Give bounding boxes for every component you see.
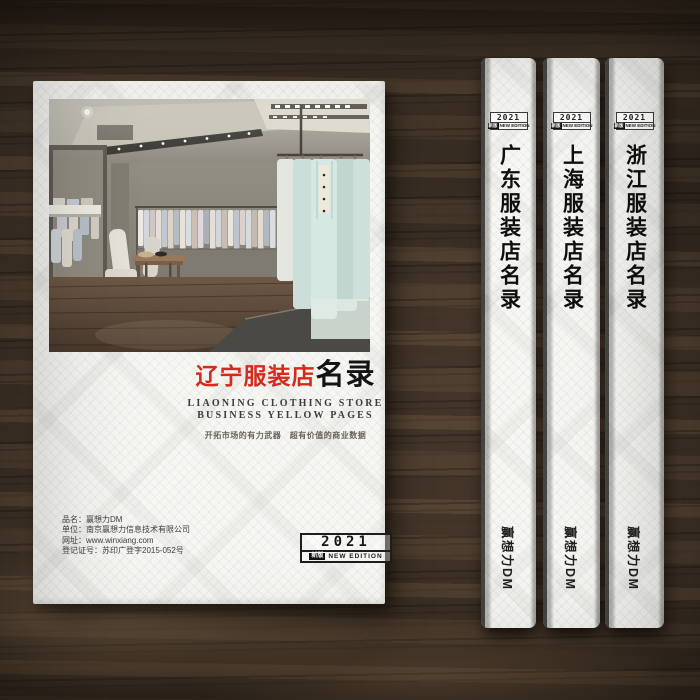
spine-brand: 赢想力DM <box>499 526 518 590</box>
info-line-company: 单位：南京赢想力信息技术有限公司 <box>62 525 190 535</box>
spine-brand: 赢想力DM <box>562 526 581 590</box>
edition-year: 2021 <box>302 535 390 552</box>
spine-new-edition-text: NEW EDITION <box>563 123 593 129</box>
spine-edition-row: 新版 NEW EDITION <box>617 123 653 129</box>
spine-edition-box: 2021 新版 NEW EDITION <box>553 112 591 130</box>
spine-new-edition-text: NEW EDITION <box>500 123 530 129</box>
store-photo <box>49 99 370 352</box>
cover-subtitle-line1: LIAONING CLOTHING STORE <box>163 398 408 410</box>
spine-edition-row: 新版 NEW EDITION <box>554 123 590 129</box>
info-line-product: 品名：赢想力DM <box>62 515 190 525</box>
spine-title: 浙江服装店名录 <box>620 144 650 312</box>
book-spine-guangdong: 2021 新版 NEW EDITION 广东服装店名录 赢想力DM <box>481 58 536 628</box>
cover-title-region: 辽宁服装店 <box>195 363 315 389</box>
new-edition-badge: 新版 <box>309 553 325 560</box>
photo-light-haze <box>49 99 370 159</box>
edition-row: 新版 NEW EDITION <box>302 552 390 561</box>
spine-title: 上海服装店名录 <box>557 144 587 312</box>
spine-edition-year: 2021 <box>491 113 527 123</box>
cover-slogan: 开拓市场的有力武器 超有价值的商业数据 <box>163 430 408 441</box>
spine-edition-row: 新版 NEW EDITION <box>491 123 527 129</box>
info-line-license: 登记证号：苏印广登字2015-052号 <box>62 546 190 556</box>
spine-new-edition-badge: 新版 <box>551 123 562 129</box>
spine-new-edition-badge: 新版 <box>488 123 499 129</box>
info-line-website: 网址：www.winxiang.com <box>62 536 190 546</box>
book-spine-zhejiang: 2021 新版 NEW EDITION 浙江服装店名录 赢想力DM <box>605 58 664 628</box>
spine-title: 广东服装店名录 <box>494 144 524 312</box>
spine-edition-year: 2021 <box>617 113 653 123</box>
book-spine-shanghai: 2021 新版 NEW EDITION 上海服装店名录 赢想力DM <box>543 58 600 628</box>
publisher-info-block: 品名：赢想力DM 单位：南京赢想力信息技术有限公司 网址：www.winxian… <box>62 515 190 556</box>
spine-edition-box: 2021 新版 NEW EDITION <box>616 112 654 130</box>
cover-subtitle-line2: BUSINESS YELLOW PAGES <box>163 410 408 422</box>
spine-new-edition-badge: 新版 <box>614 123 625 129</box>
spine-edition-year: 2021 <box>554 113 590 123</box>
cover-subtitle-en: LIAONING CLOTHING STORE BUSINESS YELLOW … <box>163 398 408 422</box>
new-edition-text: NEW EDITION <box>328 553 382 560</box>
spine-new-edition-text: NEW EDITION <box>626 123 656 129</box>
cover-title-suffix: 名录 <box>315 359 375 391</box>
wood-table-background: 辽宁服装店名录 LIAONING CLOTHING STORE BUSINESS… <box>0 0 700 700</box>
spine-edition-box: 2021 新版 NEW EDITION <box>490 112 528 130</box>
front-cover-book: 辽宁服装店名录 LIAONING CLOTHING STORE BUSINESS… <box>33 81 385 604</box>
cover-title-block: 辽宁服装店名录 LIAONING CLOTHING STORE BUSINESS… <box>163 360 408 441</box>
edition-box: 2021 新版 NEW EDITION <box>300 533 392 563</box>
cover-title: 辽宁服装店名录 <box>163 360 408 395</box>
spine-brand: 赢想力DM <box>625 526 644 590</box>
